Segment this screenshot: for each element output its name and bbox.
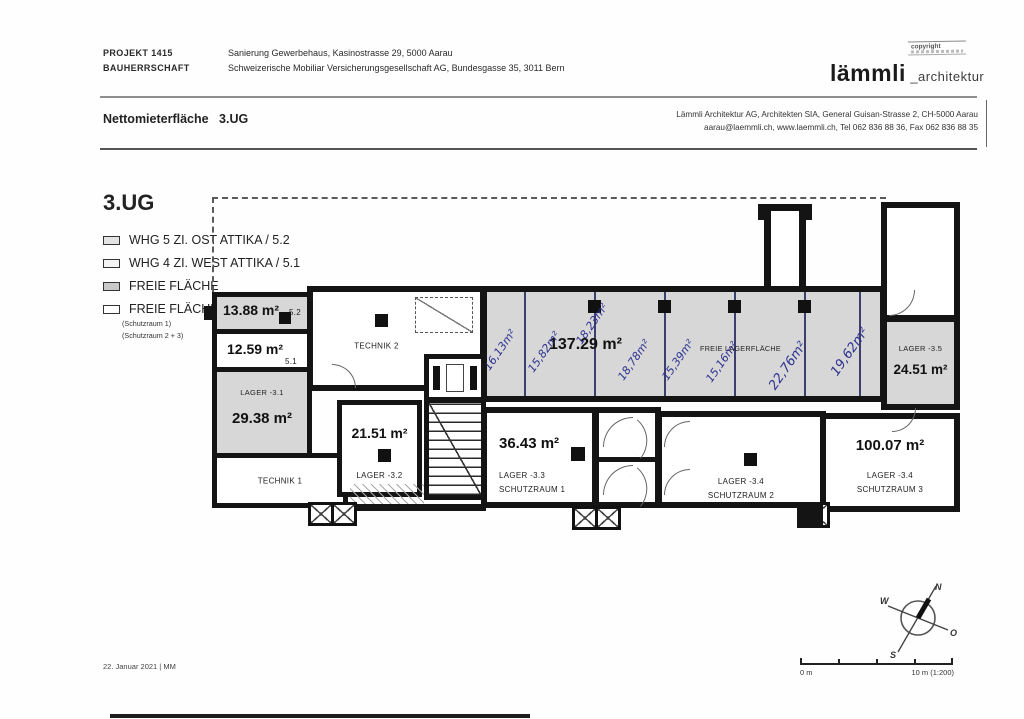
room-lager-34b-area: 100.07 m² [856,437,924,454]
project-value: Sanierung Gewerbehaus, Kasinostrasse 29,… [228,48,453,58]
plan-sheet: PROJEKT 1415 BAUHERRSCHAFT Sanierung Gew… [0,0,1024,719]
room-attika-52: 13.88 m² 5.2 [212,292,312,334]
room-lager-34a-sub: SCHUTZRAUM 2 [708,491,774,500]
copyright-text: copyright [911,43,941,51]
architect-line1: Lämmli Architektur AG, Architekten SIA, … [610,108,978,121]
elevator-cab [446,364,464,392]
lightwell-group-right [800,502,830,528]
project-label: PROJEKT 1415 [103,48,173,58]
scale-tick-1 [838,659,840,665]
room-attika-52-area: 13.88 m² [223,302,279,318]
scale-tick-4 [951,658,953,664]
room-lager-33-name: LAGER -3.3 [499,471,545,480]
compass-s: S [890,650,896,660]
client-value: Schweizerische Mobiliar Versicherungsges… [228,63,565,73]
footer-date: 22. Januar 2021 | MM [103,662,176,671]
document-title-floor: 3.UG [219,112,248,126]
room-lager-32-pier [378,449,391,462]
compass-w: W [880,596,890,606]
door-arc-schutzraum2-b [664,469,690,495]
scale-tick-2 [876,659,878,665]
document-title-text: Nettomieterfläche [103,112,209,126]
scan-artifact-strip [110,714,530,718]
lightwell-wall-block [797,502,823,528]
elevator-rail-right [470,366,477,390]
copyright-stamp: copyright [908,40,966,55]
room-lager-35-name: LAGER -3.5 [899,344,942,353]
compass-n: N [935,582,942,592]
legend-item-freie-flaeche: FREIE FLÄCHE [103,279,219,293]
room-lager-32-name: LAGER -3.2 [356,471,402,480]
legend-item-freie-flaeche-schutzraum: FREIE FLÄCHE [103,302,219,316]
room-lager-34b-sub: SCHUTZRAUM 3 [857,485,923,494]
hall-pier-3 [728,300,741,313]
legend-label-freie-flaeche: FREIE FLÄCHE [129,279,219,293]
company-logo: lämmli _architektur [830,60,984,87]
scale-tick-3 [914,659,916,665]
legend-swatch-whg4 [103,259,120,268]
elevator-rail-left [433,366,440,390]
room-lager-33-sub: SCHUTZRAUM 1 [499,485,565,494]
hall-divider-1 [524,292,526,396]
room-attika-51: 12.59 m² 5.1 [212,329,312,372]
compass-rose: N W O S [878,580,962,660]
legend-swatch-freie-flaeche [103,282,120,291]
room-lager-34a: LAGER -3.4 SCHUTZRAUM 2 [656,411,826,508]
header-divider [100,96,977,98]
logo-primary: lämmli [830,60,906,86]
elevator-shaft [424,354,486,402]
lightwell-box-2 [331,502,357,526]
room-lager-31: LAGER -3.1 29.38 m² [212,367,312,458]
room-technik-2-pier [375,314,388,327]
hall-pier-2 [658,300,671,313]
room-lager-31-area: 29.38 m² [232,410,292,427]
titlebar-edge-line [986,100,987,147]
legend-sub-schutzraum23: (Schutzraum 2 + 3) [122,331,183,340]
room-lager-34a-name: LAGER -3.4 [718,477,764,486]
client-label: BAUHERRSCHAFT [103,63,190,73]
corridor-bottom-wall [344,504,486,511]
room-lager-34a-pier [744,453,757,466]
scale-label-end: 10 m (1:200) [900,668,954,677]
legend-swatch-whg5 [103,236,120,245]
scale-label-start: 0 m [800,668,813,677]
legend-sub-schutzraum1: (Schutzraum 1) [122,319,171,328]
door-arc-schutzraum2-a [664,421,690,447]
architect-line2: aarau@laemmli.ch, www.laemmli.ch, Tel 06… [610,121,978,134]
room-lager-34b-name: LAGER -3.4 [867,471,913,480]
corridor-hatch [350,484,424,506]
cell-divider-wall [599,457,655,462]
room-attika-51-area: 12.59 m² [227,341,283,357]
scale-tick-0 [800,658,802,664]
architect-info: Lämmli Architektur AG, Architekten SIA, … [610,108,978,134]
room-attika-51-unit: 5.1 [285,357,297,366]
room-lager-31-name: LAGER -3.1 [240,388,283,397]
compass-o: O [950,628,957,638]
lightwell-group-left [308,502,357,526]
staircase [424,398,486,500]
room-technik-1-name: TECHNIK 1 [258,476,303,485]
cell-block [593,407,661,508]
room-lager-35: LAGER -3.5 24.51 m² [881,316,960,410]
room-lager-33: 36.43 m² LAGER -3.3 SCHUTZRAUM 1 [481,407,598,508]
wall-stub-left [204,306,214,320]
room-lager-34b: 100.07 m² LAGER -3.4 SCHUTZRAUM 3 [820,413,960,512]
titlebar-divider [100,148,977,150]
chimney-flange-left [758,204,770,220]
document-title: Nettomieterfläche 3.UG [103,112,248,126]
room-lager-35-area: 24.51 m² [893,362,947,377]
hall-pier-4 [798,300,811,313]
lightwell-group-middle [572,506,621,530]
vent-shaft-box [415,297,473,333]
chimney-flange-right [800,204,812,220]
room-attika-52-pier [279,312,291,324]
legend-swatch-freie-flaeche-schutzraum [103,305,120,314]
room-lager-33-area: 36.43 m² [499,435,559,452]
logo-secondary: _architektur [910,69,984,84]
lightwell-box-4 [595,506,621,530]
room-lager-32: 21.51 m² LAGER -3.2 [337,400,422,497]
room-lager-32-area: 21.51 m² [351,425,407,441]
room-technik-1: TECHNIK 1 [212,453,348,508]
room-technik-2-name: TECHNIK 2 [354,341,399,350]
legend-floor-title: 3.UG [103,190,154,216]
room-lager-33-pier [571,447,585,461]
